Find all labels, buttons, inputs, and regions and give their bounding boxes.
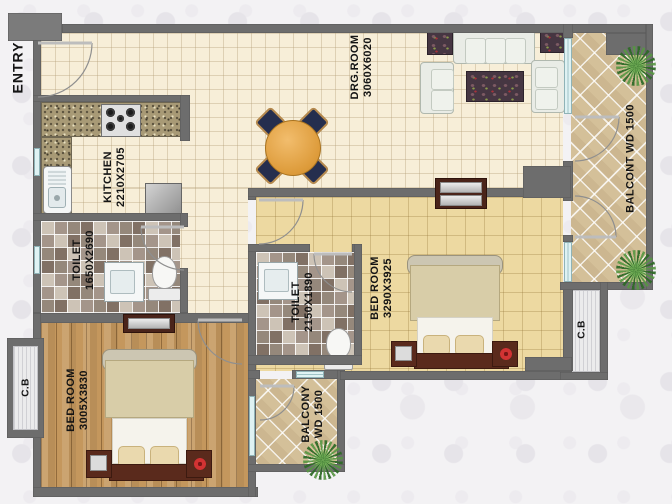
label-text: BED ROOM — [369, 233, 382, 343]
burner — [126, 108, 135, 117]
right-wall-c — [563, 235, 573, 242]
sofa-cushion — [465, 38, 486, 64]
basin-bowl — [110, 270, 135, 294]
basin-bowl — [264, 269, 289, 292]
kitchen-label: KITCHEN 2210X2705 — [102, 122, 128, 232]
entry-label: ENTRY — [12, 38, 25, 98]
table-lamp — [90, 455, 107, 471]
cupboard-left-label: C.B — [20, 368, 33, 408]
label-text: C.B — [20, 368, 33, 408]
wardrobe-cabinet-drg-bedroom — [435, 178, 487, 209]
wc-bowl — [152, 256, 177, 289]
window-bedroom-right-balcony — [564, 242, 572, 282]
label-text: DRG.ROOM — [349, 12, 362, 122]
nightstand — [492, 341, 518, 367]
nightstand — [186, 450, 212, 478]
floor-plan: ENTRY KITCHEN 2210X2705 DRG.ROOM 3060X60… — [0, 0, 672, 504]
label-dims: 1650X2690 — [84, 208, 97, 312]
window-bedroom-left-balcony — [249, 396, 255, 456]
label-text: BALCONT WD 1500 — [625, 100, 638, 218]
window-toilet-top — [34, 246, 40, 274]
end-table-right — [540, 30, 565, 53]
bedroom-left-label: BED ROOM 3005X3830 — [65, 345, 91, 455]
counter-end-wall — [180, 95, 190, 141]
drg-room-label: DRG.ROOM 3060X6020 — [349, 12, 375, 122]
window-drg-balcony — [564, 38, 572, 114]
plant-icon — [616, 250, 656, 290]
cabinet-panel — [128, 318, 170, 329]
bed-blanket — [105, 360, 194, 418]
kitchen-top-wall — [33, 95, 190, 102]
toilet-mid-right-wall — [354, 244, 362, 365]
label-text: C.B — [576, 310, 589, 350]
sofa-cushion — [535, 89, 558, 110]
label-dims: 2150X1890 — [303, 250, 316, 354]
label-text: TOILET — [290, 250, 303, 354]
cupboard-right-label: C.B — [576, 310, 589, 350]
bedroom-left-bottom-wall — [33, 487, 258, 497]
toilet-top-right-wall-a — [180, 213, 188, 227]
cabinet-panel — [440, 182, 482, 193]
bed-blanket — [410, 265, 500, 321]
cabinet-panel — [440, 195, 482, 206]
label-dims: 3005X3830 — [78, 345, 91, 455]
cupboard-right-right-wall — [600, 282, 608, 380]
two-seat-sofa-left — [420, 62, 454, 114]
window-kitchen — [34, 148, 40, 176]
right-wall-a — [563, 24, 573, 38]
label-dims: 2210X2705 — [115, 122, 128, 232]
toilet-top-right-wall-b — [180, 268, 188, 313]
burner — [106, 108, 115, 117]
balcony-bottom-label: BALCONY WD 1500 — [300, 370, 326, 458]
label-text: BED ROOM — [65, 345, 78, 455]
label-dims: 3060X6020 — [362, 12, 375, 122]
toilet-mid-bottom-wall — [248, 355, 362, 365]
label-text: ENTRY — [12, 38, 25, 98]
wash-basin-top-toilet — [104, 262, 144, 302]
plant-icon — [616, 46, 656, 86]
sink-drainboard — [48, 170, 66, 185]
toilet-top-label: TOILET 1650X2690 — [71, 208, 97, 312]
rug — [466, 71, 524, 102]
nightstand — [391, 341, 417, 367]
label-text: TOILET — [71, 208, 84, 312]
label-dims: WD 1500 — [313, 370, 326, 458]
sofa-cushion — [431, 69, 454, 90]
kitchen-sink — [43, 166, 72, 214]
balcony-bottom-top-wall-a — [248, 370, 260, 379]
balcony-right-label: BALCONT WD 1500 — [625, 100, 638, 218]
two-seat-sofa-right — [531, 60, 565, 113]
cupboard-right-bottom-wall — [560, 372, 608, 380]
sofa-cushion — [431, 90, 454, 111]
end-table-left — [427, 31, 453, 55]
label-text: KITCHEN — [102, 122, 115, 232]
double-bed-right — [391, 253, 519, 371]
faucet-icon — [54, 195, 60, 201]
bedroom-right-label: BED ROOM 3290X3925 — [369, 233, 395, 343]
table-lamp — [395, 346, 412, 361]
sofa-cushion — [535, 67, 558, 88]
flower-pot-icon — [194, 458, 206, 470]
flower-pot-icon — [500, 348, 512, 360]
label-text: BALCONY — [300, 370, 313, 458]
sofa-cushion — [485, 38, 506, 64]
wardrobe-cabinet-bedroom-left — [123, 314, 175, 333]
double-bed-left — [86, 346, 214, 486]
corner-block-lower — [525, 357, 572, 371]
toilet-wc-top — [148, 256, 180, 302]
toilet-mid-label: TOILET 2150X1890 — [290, 250, 316, 354]
sofa-cushion — [505, 38, 526, 64]
wc-tank — [148, 288, 181, 301]
label-dims: 3290X3925 — [382, 233, 395, 343]
burner — [117, 115, 124, 122]
dining-table — [265, 120, 321, 176]
refrigerator — [145, 183, 182, 216]
corner-block-upper — [523, 166, 571, 198]
bedroom-right-bottom-wall — [340, 371, 572, 380]
